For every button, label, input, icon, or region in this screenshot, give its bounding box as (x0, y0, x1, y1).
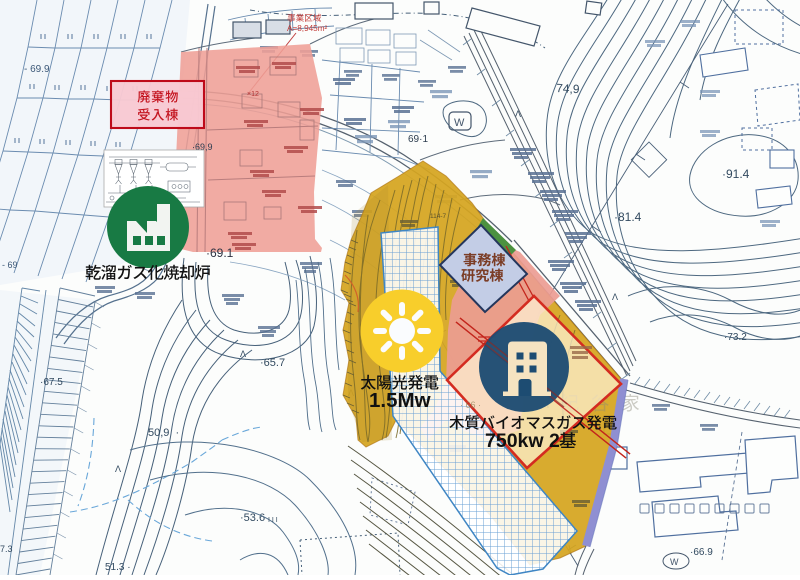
svg-text:·81.4: ·81.4 (614, 210, 642, 224)
svg-text:·65.7: ·65.7 (260, 357, 285, 369)
svg-text:- 69.9: - 69.9 (24, 64, 50, 75)
svg-text:W: W (454, 117, 465, 129)
svg-text:·53.6: ·53.6 (240, 512, 265, 524)
svg-text:·69.1: ·69.1 (206, 246, 234, 260)
svg-text:69·1: 69·1 (408, 134, 428, 145)
svg-text:×12: ×12 (247, 91, 259, 98)
svg-text:50,9 ·: 50,9 · (148, 427, 179, 439)
svg-text:·73.2: ·73.2 (724, 332, 747, 343)
svg-text:1.5Mw: 1.5Mw (369, 389, 431, 412)
svg-text:I I I: I I I (268, 517, 278, 524)
svg-text:·91.4: ·91.4 (722, 167, 750, 181)
svg-text:A=8,945m²: A=8,945m² (287, 24, 328, 33)
svg-text:Λ: Λ (115, 464, 121, 474)
svg-text:114-7: 114-7 (430, 213, 447, 220)
svg-text:- 69: - 69 (2, 260, 18, 270)
svg-text:· 66 ·: · 66 · (460, 400, 481, 410)
svg-text:·67.5: ·67.5 (40, 377, 63, 388)
svg-text:·66.9: ·66.9 (690, 547, 713, 558)
svg-text:W: W (670, 557, 679, 567)
svg-text:750kw 2: 750kw 2 (485, 430, 560, 452)
svg-text:7.3: 7.3 (0, 544, 13, 554)
svg-text:Λ: Λ (612, 292, 618, 302)
svg-text:Λ: Λ (240, 349, 246, 359)
svg-text:74,9: 74,9 (556, 81, 580, 96)
